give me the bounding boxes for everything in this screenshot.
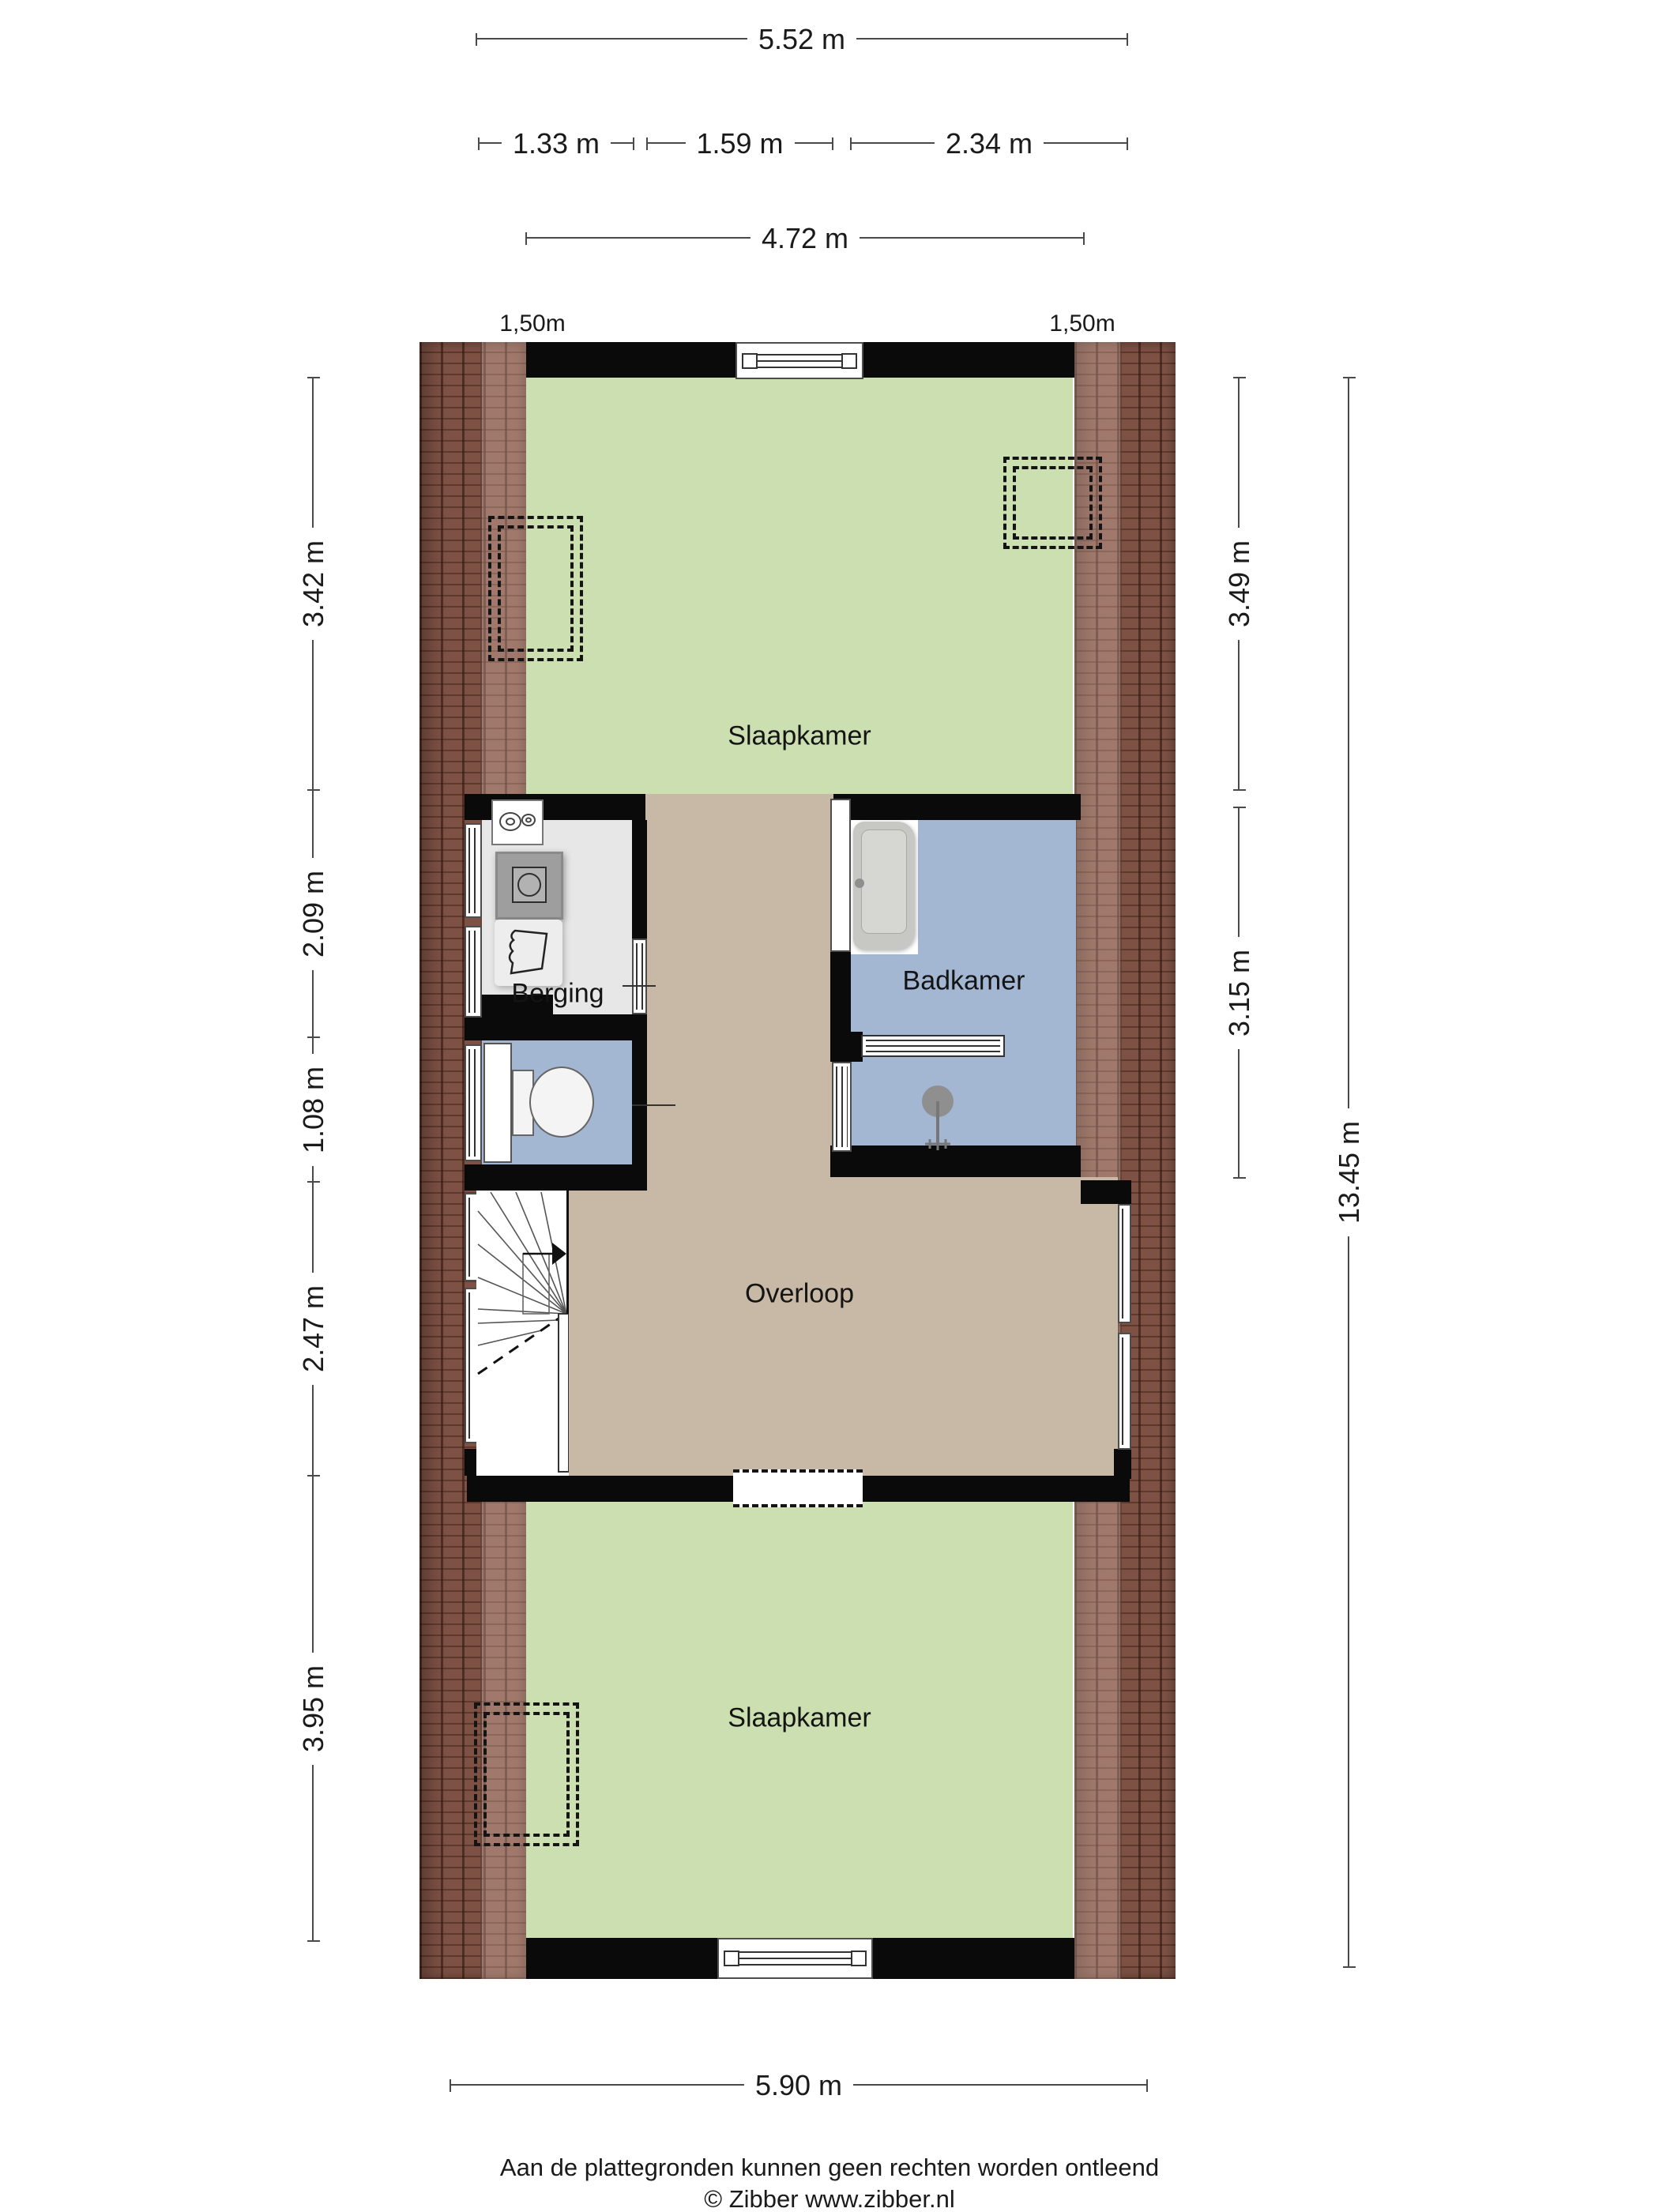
window-glazing <box>1122 1209 1127 1319</box>
room-label-bathroom: Badkamer <box>903 966 1025 997</box>
window-mullion <box>851 1951 867 1966</box>
dim-top-inner: 4.72 m <box>526 237 1084 239</box>
footer-disclaimer: Aan de plattegronden kunnen geen rechten… <box>0 2154 1659 2182</box>
dim-top-seg-c: 2.34 m <box>851 142 1127 144</box>
door-bathroom <box>832 1062 852 1152</box>
window-toilet-left <box>465 1044 482 1161</box>
radiator-icon <box>861 1035 1005 1057</box>
door-frame-lines <box>636 943 643 1010</box>
dim-top-seg-b: 1.59 m <box>647 142 833 144</box>
wall-landing-right-bottom <box>1114 1449 1131 1479</box>
footer-copyright: © Zibber www.zibber.nl <box>0 2185 1659 2212</box>
skylight-inner-frame <box>1013 466 1093 540</box>
window-storage-left-upper <box>465 823 482 918</box>
dim-right-total: 13.45 m <box>1348 378 1349 1967</box>
wall-top-left <box>526 342 735 378</box>
dim-label: 3.95 m <box>297 1652 330 1764</box>
bathtub-faucet <box>855 878 864 888</box>
skylight-bedroom-top-right <box>1003 457 1102 549</box>
shower-icon <box>919 1085 957 1152</box>
laundry-basket-icon <box>495 920 562 986</box>
dim-label: 2.34 m <box>935 127 1044 160</box>
dim-right-1: 3.49 m <box>1238 378 1240 790</box>
dim-left-4: 2.47 m <box>312 1182 314 1476</box>
ventilation-unit-icon <box>491 799 544 845</box>
toilet-leader-line <box>632 1104 675 1106</box>
window-glazing <box>468 1049 478 1157</box>
skylight-inner-frame <box>483 1712 570 1837</box>
roof-height-mark-right: 1,50m <box>1049 310 1115 337</box>
window-bedroom-top <box>735 342 863 379</box>
roof-height-line-band-right <box>1074 342 1122 1979</box>
window-mullion <box>724 1951 739 1966</box>
window-glazing <box>725 1951 865 1966</box>
window-glazing <box>468 931 478 1013</box>
washer-drum <box>517 873 541 897</box>
wall-landing-right-top <box>1081 1180 1131 1204</box>
bathtub-icon <box>853 822 915 950</box>
washer-inner-square <box>512 867 547 903</box>
wall-toilet-bottom <box>465 1164 647 1191</box>
washing-machine-icon <box>495 852 563 920</box>
window-bedroom-bottom <box>717 1938 873 1979</box>
staircase-icon <box>476 1191 569 1476</box>
window-glazing <box>468 1292 474 1439</box>
floorplan-canvas: Slaapkamer Berging Badkamer Overloop Sla… <box>0 0 1659 2212</box>
dim-label: 2.09 m <box>297 857 330 969</box>
door-storage <box>632 939 647 1014</box>
dim-label: 5.90 m <box>744 2069 853 2102</box>
skylight-bedroom-bottom <box>474 1702 579 1846</box>
radiator-lines <box>866 1040 1000 1052</box>
window-storage-left-lower <box>465 926 482 1018</box>
wall-toilet-right <box>632 1040 647 1164</box>
dim-left-2: 2.09 m <box>312 790 314 1037</box>
dim-label: 1.59 m <box>685 127 794 160</box>
dim-label: 3.49 m <box>1223 528 1256 640</box>
dim-label: 2.47 m <box>297 1273 330 1385</box>
bathtub-inner <box>861 829 907 934</box>
skylight-inner-frame <box>498 525 574 652</box>
window-mullion <box>841 353 857 369</box>
room-label-storage: Berging <box>511 979 604 1010</box>
dim-label: 3.42 m <box>297 528 330 640</box>
dim-top-total: 5.52 m <box>476 38 1127 39</box>
dim-label: 5.52 m <box>747 23 856 56</box>
room-label-bedroom-top: Slaapkamer <box>728 721 871 752</box>
wall-bathroom-top <box>833 794 1081 820</box>
opening-bathroom-left <box>830 799 851 952</box>
window-glazing <box>468 828 478 913</box>
dim-label: 4.72 m <box>750 222 860 255</box>
window-landing-right-upper <box>1118 1204 1131 1323</box>
wall-storage-toilet <box>553 1014 647 1040</box>
window-glazing <box>1122 1337 1127 1445</box>
dim-left-1: 3.42 m <box>312 378 314 790</box>
dim-label: 1.33 m <box>502 127 611 160</box>
window-glazing <box>743 354 856 368</box>
dim-top-seg-a: 1.33 m <box>479 142 634 144</box>
dim-bottom-total: 5.90 m <box>450 2084 1147 2086</box>
storage-leader-line <box>623 985 656 987</box>
dim-label: 3.15 m <box>1223 936 1256 1048</box>
landing-floor-main <box>833 1177 1118 1479</box>
skylight-bedroom-top-left <box>488 516 583 661</box>
roof-height-mark-left: 1,50m <box>499 310 565 337</box>
dim-label: 1.08 m <box>297 1053 330 1165</box>
dim-right-2: 3.15 m <box>1238 807 1240 1178</box>
window-landing-right-lower <box>1118 1333 1131 1450</box>
dim-left-3: 1.08 m <box>312 1037 314 1182</box>
toilet-icon-bowl <box>529 1066 594 1138</box>
window-glazing <box>468 1198 474 1277</box>
room-label-bedroom-bottom: Slaapkamer <box>728 1703 871 1734</box>
wall-top-right <box>863 342 1074 378</box>
window-mullion <box>742 353 758 369</box>
wall-radiator-block <box>833 1032 863 1062</box>
door-landing-bedroom <box>733 1469 863 1507</box>
door-frame-lines <box>836 1066 848 1147</box>
room-label-landing: Overloop <box>745 1279 854 1310</box>
dim-label: 13.45 m <box>1333 1108 1366 1236</box>
toilet-door-leaf <box>483 1043 512 1163</box>
wall-storage-right <box>632 820 647 939</box>
dim-left-5: 3.95 m <box>312 1476 314 1941</box>
